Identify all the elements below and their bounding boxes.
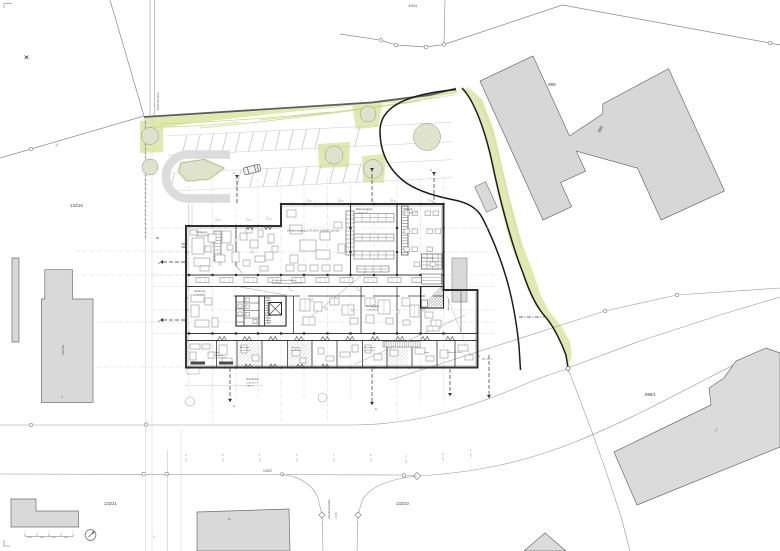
svg-text:05 Zwischenlager Kleinteile: 05 Zwischenlager Kleinteile (272, 279, 297, 282)
svg-text:ca 84,00 m²: ca 84,00 m² (366, 308, 378, 311)
svg-text:ca 136,01 m²: ca 136,01 m² (404, 211, 417, 214)
svg-text:A: A (158, 319, 160, 323)
svg-text:ca 45,07 m²: ca 45,07 m² (194, 293, 206, 296)
svg-text:1004: 1004 (408, 3, 418, 8)
svg-text:Schnittpunkt: Schnittpunkt (246, 378, 259, 381)
svg-text:7,5: 7,5 (390, 199, 393, 201)
svg-text:Empfang: Empfang (215, 355, 223, 357)
svg-text:A: A (375, 407, 377, 411)
svg-text:132/10: 132/10 (396, 501, 409, 506)
svg-text:132/5: 132/5 (263, 469, 272, 473)
svg-text:Schulungsr.: Schulungsr. (364, 346, 376, 349)
svg-text:ca 36,00 m²: ca 36,00 m² (215, 357, 226, 360)
svg-text:BWV DN1200: BWV DN1200 (156, 92, 160, 110)
svg-text:7,5: 7,5 (338, 199, 341, 201)
svg-text:7,5: 7,5 (428, 199, 431, 201)
svg-text:04 Kommissionierung ca 28,05: 04 Kommissionierung ca 28,05 m² (272, 282, 303, 285)
svg-text:(1323): (1323) (335, 512, 338, 519)
svg-text:A: A (233, 171, 235, 175)
svg-text:02 Wareneingang ca 171,30 m²: 02 Wareneingang ca 171,30 m² +0,00=171,3… (287, 230, 340, 233)
svg-text:emelechstraße: emelechstraße (327, 499, 331, 519)
svg-text:Abwasser: Abwasser (240, 346, 250, 349)
svg-text:ca 26,95 m²: ca 26,95 m² (240, 349, 251, 352)
svg-text:Warenausgang: Warenausgang (356, 208, 373, 211)
svg-text:A: A (158, 261, 160, 265)
svg-text:Vertrieb: Vertrieb (404, 208, 413, 211)
svg-text:132/15: 132/15 (70, 203, 83, 208)
svg-text:Müllraum 13,05 m²: Müllraum 13,05 m² (447, 351, 463, 354)
svg-text:A: A (233, 404, 235, 408)
svg-text:Heizraum: Heizraum (291, 346, 301, 349)
svg-text:7,5: 7,5 (215, 218, 218, 220)
svg-text:998/1: 998/1 (645, 392, 657, 397)
svg-text:7,5: 7,5 (246, 218, 249, 220)
svg-text:ca 36,13 m²: ca 36,13 m² (364, 349, 375, 352)
svg-text:Sortierung: Sortierung (194, 290, 206, 293)
svg-text:ca 103,29 m²: ca 103,29 m² (196, 235, 210, 238)
svg-text:20. Montage: 20. Montage (366, 305, 380, 308)
svg-text:7,5: 7,5 (266, 217, 269, 219)
svg-text:7,5: 7,5 (306, 199, 309, 201)
svg-text:à 947 m: à 947 m (246, 386, 254, 388)
svg-text:132/15a: 132/15a (61, 344, 65, 355)
svg-text:Papierablage: Papierablage (422, 257, 435, 260)
svg-text:Sortierung: Sortierung (196, 231, 208, 234)
svg-text:Lager: Lager (424, 351, 430, 354)
svg-text:A: A (430, 168, 432, 172)
svg-text:999: 999 (548, 82, 556, 87)
svg-text:ca 27,17 m²: ca 27,17 m² (291, 349, 302, 352)
svg-text:ca 55,61 m²: ca 55,61 m² (356, 211, 368, 214)
svg-text:H: H (61, 396, 63, 399)
svg-text:ca 84,05 m²: ca 84,05 m² (246, 381, 258, 384)
svg-text:132/21: 132/21 (104, 501, 117, 506)
